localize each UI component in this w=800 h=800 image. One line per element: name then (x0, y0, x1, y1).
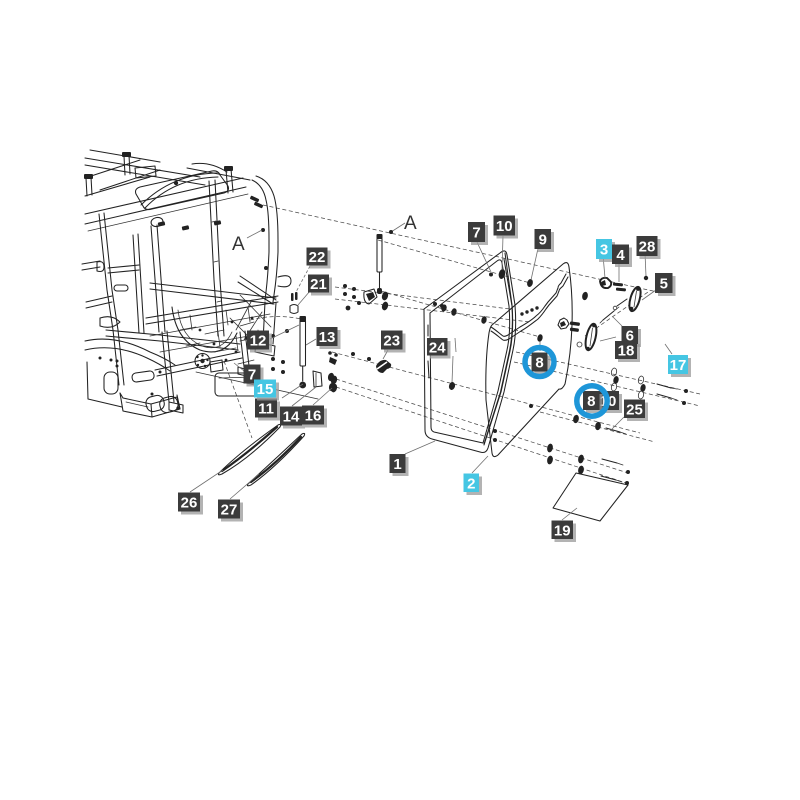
svg-text:27: 27 (221, 502, 238, 519)
svg-text:9: 9 (539, 232, 547, 249)
svg-text:12: 12 (250, 333, 267, 350)
svg-text:28: 28 (639, 239, 656, 256)
svg-text:18: 18 (618, 343, 635, 360)
svg-text:22: 22 (309, 249, 326, 266)
svg-text:11: 11 (258, 401, 274, 418)
svg-text:1: 1 (393, 456, 401, 473)
svg-text:7: 7 (472, 225, 480, 242)
svg-text:3: 3 (600, 242, 608, 259)
svg-text:19: 19 (554, 522, 571, 539)
svg-text:24: 24 (429, 339, 446, 356)
svg-text:8: 8 (587, 393, 595, 410)
svg-text:23: 23 (383, 333, 400, 350)
svg-text:2: 2 (467, 475, 475, 492)
svg-text:15: 15 (257, 381, 274, 398)
svg-text:A: A (232, 234, 245, 255)
svg-text:25: 25 (626, 401, 643, 418)
svg-text:8: 8 (535, 355, 543, 372)
svg-text:16: 16 (305, 408, 322, 425)
svg-text:13: 13 (319, 329, 336, 346)
svg-text:A: A (404, 213, 417, 234)
svg-text:5: 5 (660, 276, 668, 293)
svg-text:14: 14 (283, 409, 300, 426)
svg-text:17: 17 (670, 357, 687, 374)
svg-text:26: 26 (181, 495, 198, 512)
svg-text:21: 21 (310, 276, 327, 293)
svg-text:4: 4 (616, 247, 625, 264)
svg-text:10: 10 (496, 218, 513, 235)
